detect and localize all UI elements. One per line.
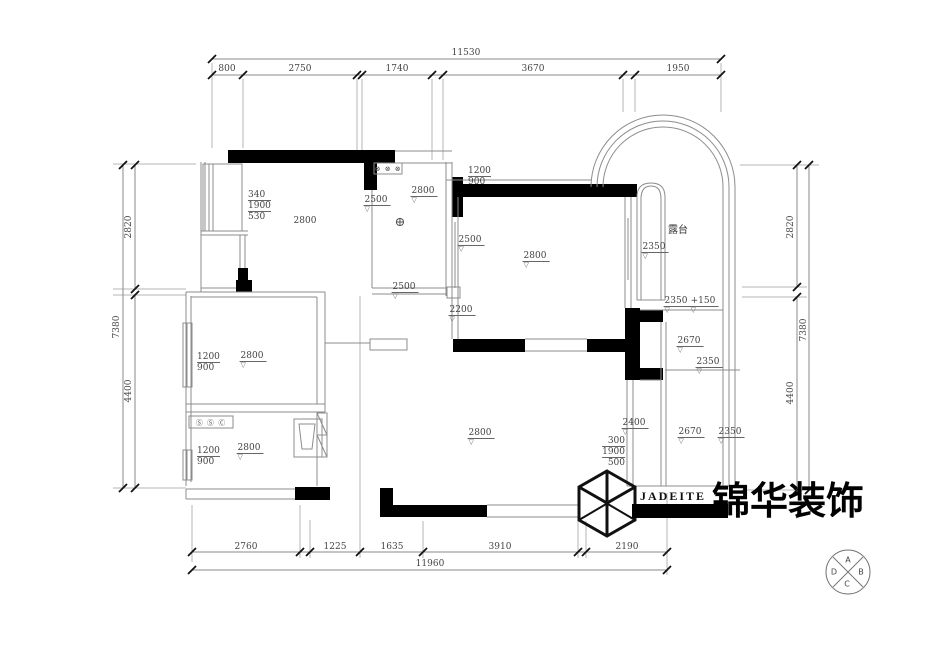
level-icon: ▽ (678, 347, 704, 353)
dim-top-seg: 1740 (386, 64, 409, 74)
label-bedroom-2200: 2200▽ (449, 305, 476, 322)
dim-bottom-overall: 11960 (416, 559, 445, 569)
level-icon: ▽ (719, 438, 745, 444)
label-bath-top: 2800▽ (411, 186, 438, 203)
level-icon: ▽ (412, 197, 438, 203)
level-icon: ▽ (643, 253, 669, 259)
level-icon: ▽ (241, 362, 267, 368)
label-terrace-lower: 2350▽ (664, 296, 691, 313)
label-rightbottom-2350: 2350▽ (718, 427, 745, 444)
compass-letter-s: C (844, 580, 850, 589)
label-topleft-height: 2800 (294, 216, 317, 226)
ceiling-light-icon: ⊕ (395, 218, 406, 228)
dim-bottom-seg: 1635 (381, 542, 404, 552)
terrace-arc (591, 115, 735, 187)
logo-cube-icon (579, 471, 635, 536)
floorplan-page: 11530 800 2750 1740 3670 1950 2760 1225 … (0, 0, 940, 664)
label-midleft-height: 2800▽ (240, 351, 267, 368)
level-icon: ▽ (691, 307, 719, 313)
label-rightbottom-stack: 300 1900 500 (602, 436, 625, 468)
dim-top-seg: 1950 (667, 64, 690, 74)
label-rightmid-height: 2670▽ (677, 336, 704, 353)
level-icon: ▽ (469, 439, 495, 445)
label-bedroom-height: 2800▽ (523, 251, 550, 268)
label-living-height: 2800▽ (468, 428, 495, 445)
compass-letter-e: B (858, 568, 864, 577)
dim-right-overall: 7380 (799, 319, 809, 342)
room-name-terrace: 露台 (668, 226, 688, 236)
dim-right-seg: 4400 (786, 382, 796, 405)
label-rightbottom-height: 2670▽ (678, 427, 705, 444)
level-icon: ▽ (238, 454, 264, 460)
label-bedroom-2500: 2500▽ (458, 235, 485, 252)
logo-brand-text: JADEITE (640, 489, 706, 504)
logo-chinese-text: 锦华装饰 (712, 481, 864, 523)
level-icon: ▽ (393, 293, 419, 299)
level-icon: ▽ (365, 206, 391, 212)
label-bath-left: 2500▽ (364, 195, 391, 212)
level-icon: ▽ (679, 438, 705, 444)
compass-letter-w: D (831, 568, 837, 577)
dim-left-overall: 7380 (112, 316, 122, 339)
dim-bottom-seg: 2760 (235, 542, 258, 552)
dim-top-seg: 3670 (522, 64, 545, 74)
dim-top-seg: 800 (218, 64, 235, 74)
dim-bottom-seg: 3910 (489, 542, 512, 552)
label-rightmid-sub: 2350▽ (696, 357, 723, 374)
dim-top-overall: 11530 (452, 48, 481, 58)
label-terrace-height: 2350▽ (642, 242, 669, 259)
level-icon: ▽ (697, 368, 723, 374)
level-icon: ▽ (450, 316, 476, 322)
dim-right-seg: 2820 (786, 216, 796, 239)
label-bedroom-above: 1200 900 (468, 166, 491, 187)
label-kitchen-stack: 1200 900 (197, 446, 220, 467)
label-midleft-stack: 1200 900 (197, 352, 220, 373)
dim-bottom-seg: 2190 (616, 542, 639, 552)
compass-letter-n: A (845, 556, 850, 565)
dim-left-seg: 2820 (124, 216, 134, 239)
label-terrace-level: +150▽ (690, 296, 719, 313)
level-icon: ▽ (623, 429, 649, 435)
level-icon: ▽ (459, 246, 485, 252)
level-icon: ▽ (524, 262, 550, 268)
label-rightbottom-2400: 2400▽ (622, 418, 649, 435)
switch-icons: ⊗ ⊗ ⊗ (374, 164, 401, 174)
label-bath-bottom: 2500▽ (392, 282, 419, 299)
dim-left-seg: 4400 (124, 380, 134, 403)
dim-bottom-seg: 1225 (324, 542, 347, 552)
dim-top-seg: 2750 (289, 64, 312, 74)
level-icon: ▽ (665, 307, 691, 313)
switch-icons: Ⓢ Ⓢ Ⓒ (196, 418, 226, 428)
label-kitchen-height: 2800▽ (237, 443, 264, 460)
label-topleft-stack: 340 1900 530 (248, 190, 271, 222)
